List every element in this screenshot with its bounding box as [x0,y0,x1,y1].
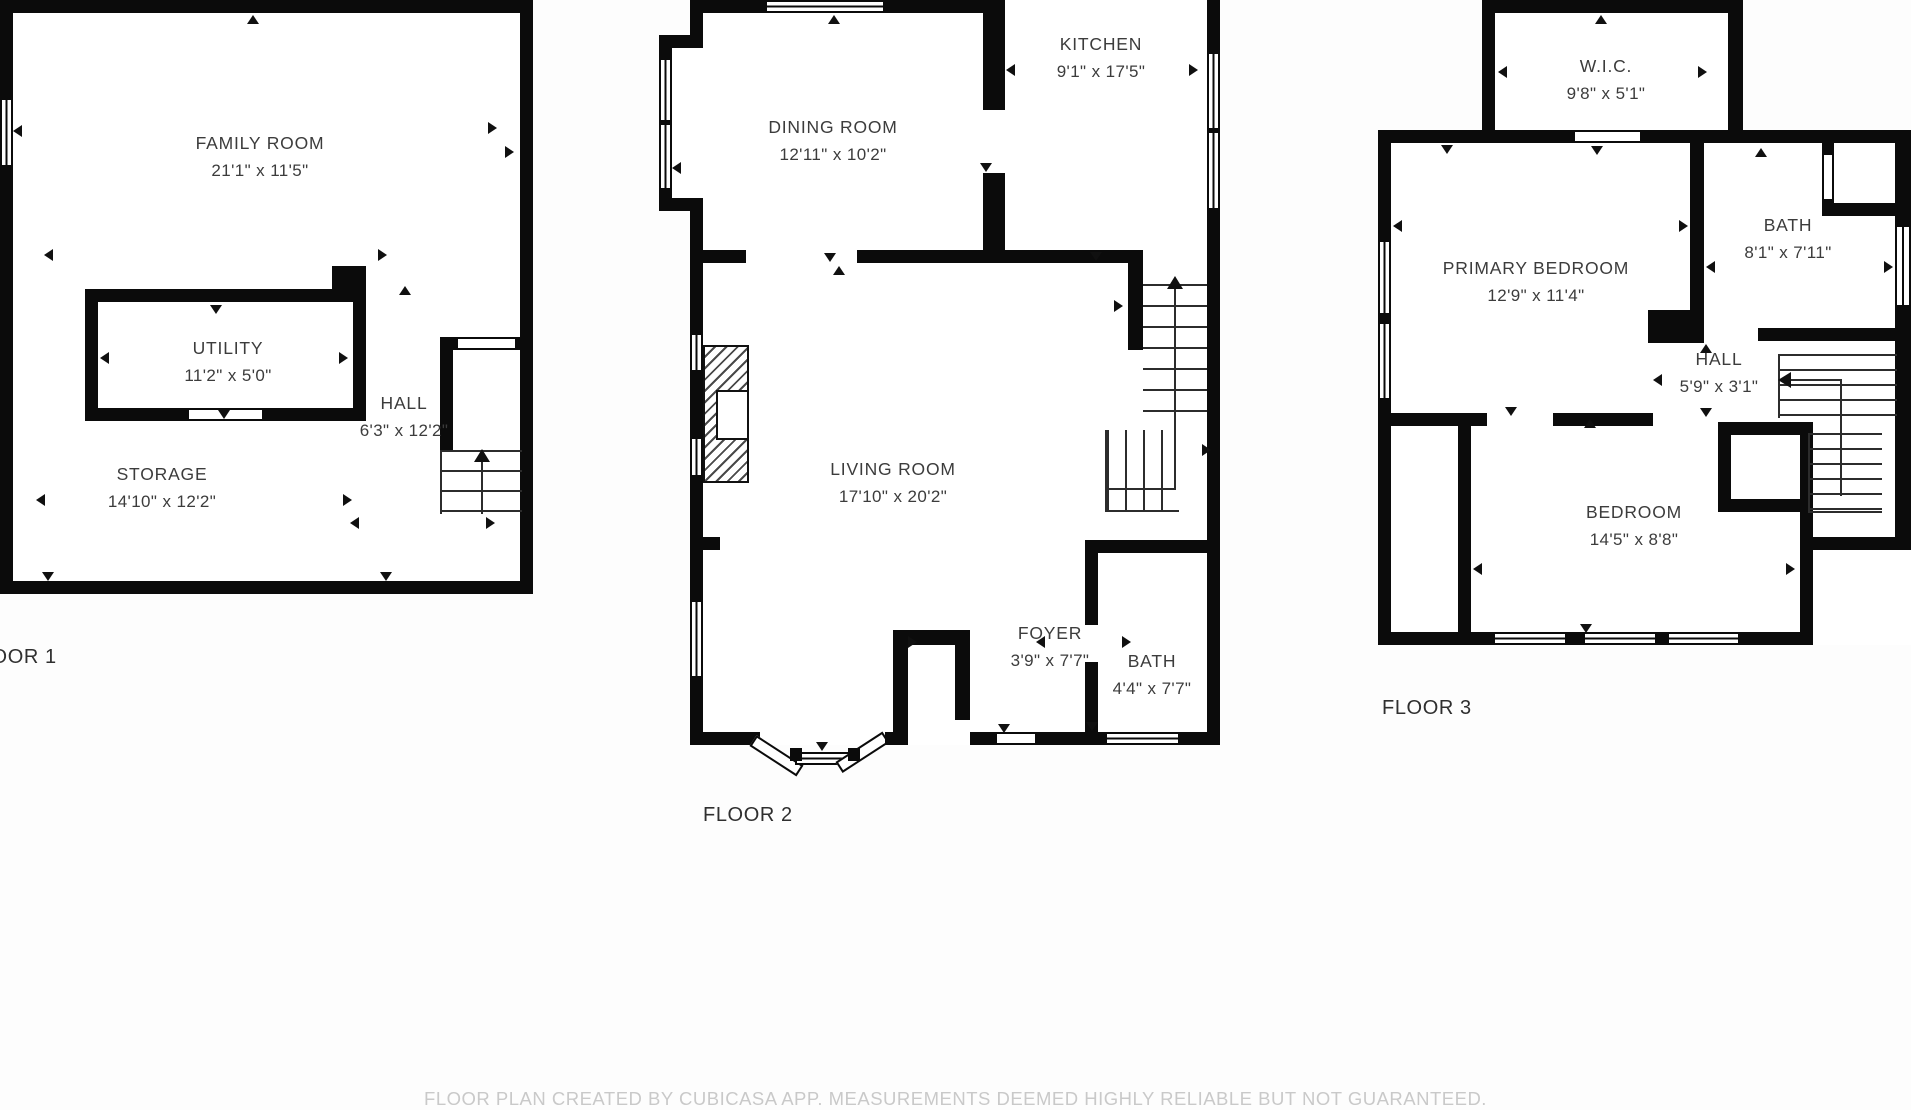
direction-arrow [998,724,1010,733]
wall [1553,413,1653,426]
room-label-hall3: HALL 5'9" x 3'1" [1680,346,1759,400]
direction-arrow [247,15,259,24]
direction-arrow [505,146,514,158]
direction-arrow [44,249,53,261]
floor-label-3: FLOOR 3 [1382,697,1472,720]
direction-arrow [339,352,348,364]
direction-arrow [1090,252,1102,261]
wall [1657,632,1667,645]
direction-arrow [1706,261,1715,273]
room-label-bath3: BATH 8'1" x 7'11" [1744,212,1831,266]
bedroom-wall-left [1458,426,1471,632]
utility-wall-top [85,289,366,302]
stair-path-line [1840,379,1842,496]
room-name: HALL [1680,346,1759,373]
room-dims: 4'4" x 7'7" [1113,675,1192,702]
wall [1740,632,1813,645]
direction-arrow [1498,66,1507,78]
wall [1391,413,1487,426]
room-label-hall: HALL 6'3" x 12'2" [360,390,449,444]
wall [1567,632,1583,645]
utility-wall-bottom [85,408,189,421]
wall [1085,540,1220,553]
wall [1378,632,1493,645]
closet-wall [893,630,970,645]
window [690,333,703,372]
room-label-bath2: BATH 4'4" x 7'7" [1113,648,1192,702]
wall [983,173,1005,250]
stair-up-arrow [1167,276,1183,289]
wall [1895,307,1911,550]
nook-wall [1822,203,1895,216]
room-label-utility: UTILITY 11'2" x 5'0" [184,335,271,389]
direction-arrow [1584,419,1596,428]
door-opening [1575,130,1640,143]
wall [1180,732,1220,745]
room-label-bedroom: BEDROOM 14'5" x 8'8" [1586,499,1682,553]
direction-arrow [1505,407,1517,416]
room-dims: 9'8" x 5'1" [1567,80,1646,107]
room-label-storage: STORAGE 14'10" x 12'2" [108,461,216,515]
bump-wall-top [659,35,703,48]
closet-wall [1718,499,1807,512]
window [765,0,885,13]
room-name: BEDROOM [1586,499,1682,526]
bay-post [790,748,802,761]
floor-label-2: FLOOR 2 [703,804,793,827]
room-dims: 12'11" x 10'2" [768,141,897,168]
door-opening [458,337,515,350]
direction-arrow [1114,300,1123,312]
window [1378,240,1391,315]
room-name: HALL [360,390,449,417]
staircase-treads [1808,433,1882,513]
room-dims: 8'1" x 7'11" [1744,239,1831,266]
room-label-wic: W.I.C. 9'8" x 5'1" [1567,53,1646,107]
direction-arrow [1036,636,1045,648]
closet-wall [1718,422,1807,435]
wall [1378,143,1391,240]
room-label-family-room: FAMILY ROOM 21'1" x 11'5" [196,130,325,184]
direction-arrow [672,162,681,174]
wall [1378,130,1575,143]
room-name: DINING ROOM [768,114,897,141]
window [1895,225,1911,307]
front-door-opening [997,732,1035,745]
room-dims: 5'9" x 3'1" [1680,373,1759,400]
wall [0,13,13,98]
room-dims: 12'9" x 11'4" [1443,282,1629,309]
room-dims: 21'1" x 11'5" [196,157,325,184]
wall [970,732,997,745]
direction-arrow [1591,146,1603,155]
stair-up-arrow [474,449,490,462]
wall [1648,310,1704,343]
staircase-treads [1105,430,1179,512]
direction-arrow [486,517,495,529]
room-name: BATH [1744,212,1831,239]
room-dims: 17'10" x 20'2" [830,483,955,510]
direction-arrow [1473,563,1482,575]
direction-arrow [100,352,109,364]
direction-arrow [1700,408,1712,417]
door-opening [1822,155,1834,199]
direction-arrow [1202,444,1211,456]
direction-arrow [828,15,840,24]
room-dims: 6'3" x 12'2" [360,417,449,444]
wall [1895,143,1911,225]
direction-arrow [816,742,828,751]
direction-arrow [908,636,917,648]
fireplace-hearth [716,390,749,440]
utility-wall-left [85,302,98,408]
window-mullion [1207,128,1220,133]
room-name: BATH [1113,648,1192,675]
room-dims: 11'2" x 5'0" [184,362,271,389]
direction-arrow [350,517,359,529]
closet-wall [1718,435,1731,499]
room-label-foyer: FOYER 3'9" x 7'7" [1011,620,1090,674]
room-dims: 9'1" x 17'5" [1057,58,1146,85]
window [690,437,703,477]
utility-wall-notch [332,266,366,302]
direction-arrow [1653,374,1662,386]
direction-arrow [1679,220,1688,232]
direction-arrow [1595,15,1607,24]
direction-arrow [42,572,54,581]
room-name: UTILITY [184,335,271,362]
floor-label-1: FLOOR 1 [0,646,57,669]
stair-wall-top [440,337,458,350]
wall [690,477,703,600]
wall [690,198,703,333]
disclaimer-text: FLOOR PLAN CREATED BY CUBICASA APP. MEAS… [0,1088,1911,1110]
direction-arrow [1698,66,1707,78]
room-name: W.I.C. [1567,53,1646,80]
room-name: LIVING ROOM [830,456,955,483]
wall [690,250,746,263]
direction-arrow [1786,563,1795,575]
direction-arrow [218,410,230,419]
direction-arrow [1189,64,1198,76]
direction-arrow [1122,636,1131,648]
wall [1378,400,1391,645]
window-mullion [659,120,672,125]
room-name: STORAGE [108,461,216,488]
direction-arrow [36,494,45,506]
direction-arrow [378,249,387,261]
window [1493,632,1567,645]
room-name: FAMILY ROOM [196,130,325,157]
direction-arrow [980,163,992,172]
wall [1207,210,1220,745]
room-name: FOYER [1011,620,1090,647]
wic-wall-right [1728,13,1743,130]
stair-wall-top [515,337,533,350]
window [1583,632,1657,645]
direction-arrow [1393,220,1402,232]
wall [1758,328,1895,341]
direction-arrow [488,122,497,134]
direction-arrow [1700,344,1712,353]
direction-arrow [1580,624,1592,633]
utility-wall-bottom [262,408,366,421]
room-dims: 14'10" x 12'2" [108,488,216,515]
window [1105,732,1180,745]
closet-wall [955,645,970,720]
direction-arrow [13,125,22,137]
direction-arrow [380,572,392,581]
stair-path-line [1105,488,1175,490]
direction-arrow [1884,261,1893,273]
direction-arrow [824,253,836,262]
direction-arrow [210,305,222,314]
window [690,600,703,678]
room-dims: 3'9" x 7'7" [1011,647,1090,674]
nook-wall [1822,143,1834,155]
stair-path-line [1174,284,1176,490]
wall [1035,732,1105,745]
stair-wall-bottom [1808,537,1911,550]
wall [885,732,893,745]
direction-arrow [343,494,352,506]
direction-arrow [1441,145,1453,154]
bath-wall-left [1085,553,1098,625]
wall [0,0,533,13]
wall [885,0,1005,13]
bump-wall-left [659,190,672,198]
stair-down-arrow [1778,372,1791,388]
bump-wall-left [659,48,672,58]
wall [1690,143,1704,310]
wall [0,581,533,594]
room-dims: 14'5" x 8'8" [1586,526,1682,553]
room-label-primary-bedroom: PRIMARY BEDROOM 12'9" x 11'4" [1443,255,1629,309]
room-name: PRIMARY BEDROOM [1443,255,1629,282]
stair-wall-left [1128,263,1143,350]
wall-stub [703,537,720,550]
window [1378,322,1391,400]
stair-path-line [1791,379,1842,381]
wall [690,372,703,437]
window [0,98,13,167]
room-label-kitchen: KITCHEN 9'1" x 17'5" [1057,31,1146,85]
wall [1640,130,1911,143]
direction-arrow [399,286,411,295]
room-label-living-room: LIVING ROOM 17'10" x 20'2" [830,456,955,510]
wic-wall-left [1482,13,1495,130]
room-name: KITCHEN [1057,31,1146,58]
direction-arrow [833,266,845,275]
staircase-treads [1778,354,1897,418]
direction-arrow [1086,722,1098,731]
bay-post [848,748,860,761]
direction-arrow [1755,148,1767,157]
wall [983,13,1005,110]
wall [1207,0,1220,52]
wic-wall-top [1482,0,1743,13]
direction-arrow [1006,64,1015,76]
closet-wall [893,645,908,745]
wall [1378,315,1391,322]
wall [0,167,13,594]
room-label-dining-room: DINING ROOM 12'11" x 10'2" [768,114,897,168]
wall [690,732,760,745]
window [1667,632,1740,645]
